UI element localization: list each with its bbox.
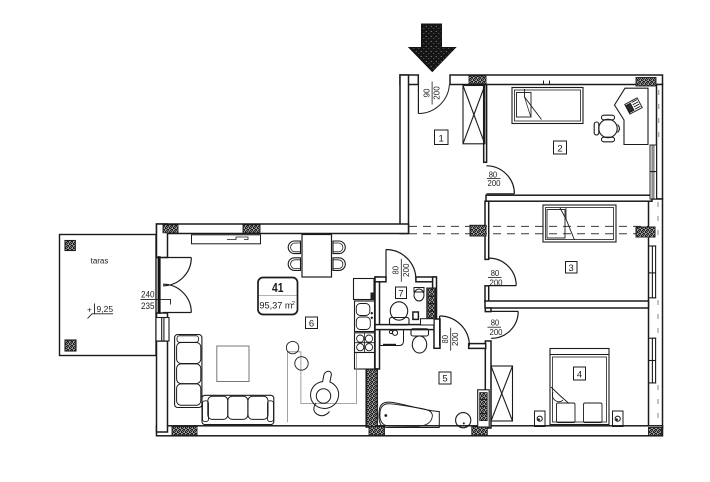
svg-text:9,25: 9,25 [97, 304, 114, 314]
svg-text:80: 80 [440, 335, 450, 344]
svg-text:taras: taras [91, 257, 109, 266]
svg-text:+: + [87, 305, 92, 315]
svg-text:200: 200 [432, 86, 442, 100]
svg-text:200: 200 [401, 263, 411, 277]
svg-text:41: 41 [272, 281, 284, 295]
svg-text:200: 200 [488, 178, 501, 188]
svg-text:80: 80 [391, 266, 401, 275]
svg-text:90: 90 [421, 88, 431, 97]
svg-text:5: 5 [442, 374, 447, 385]
svg-text:3: 3 [569, 263, 574, 274]
svg-text:4: 4 [577, 370, 582, 381]
svg-text:1: 1 [439, 134, 444, 145]
svg-text:95,37 m: 95,37 m [259, 301, 293, 311]
svg-text:200: 200 [490, 327, 503, 337]
svg-text:7: 7 [398, 288, 403, 299]
svg-text:6: 6 [309, 318, 314, 329]
svg-text:240: 240 [141, 289, 155, 299]
svg-text:2: 2 [557, 144, 562, 155]
svg-text:200: 200 [450, 332, 460, 346]
svg-text:2: 2 [292, 301, 295, 307]
svg-text:235: 235 [141, 301, 155, 311]
svg-text:200: 200 [490, 277, 503, 287]
